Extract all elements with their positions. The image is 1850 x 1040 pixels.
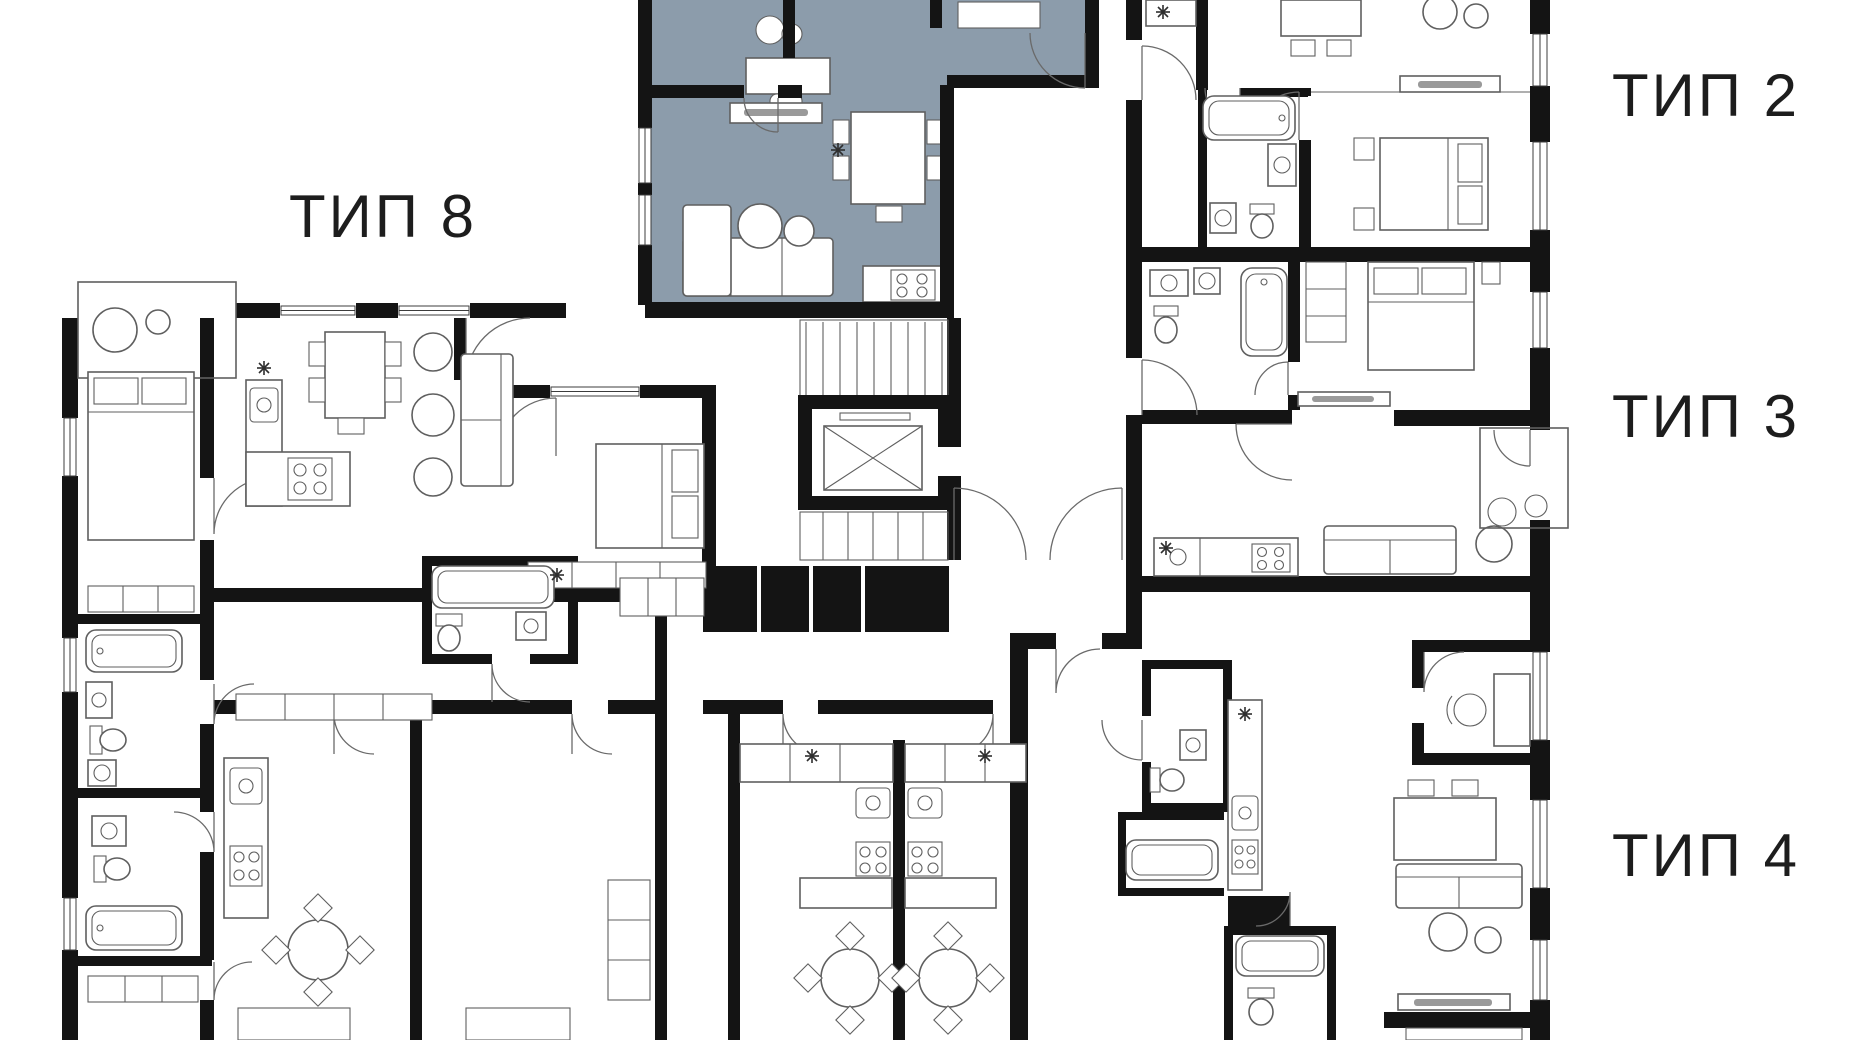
sink-icon <box>92 816 126 846</box>
bathtub-icon <box>1236 936 1324 976</box>
armchair-icon <box>414 333 452 371</box>
sofa-icon <box>1396 864 1522 908</box>
window-icon <box>64 898 76 950</box>
pouf-icon <box>738 204 782 248</box>
floor-plan: ТИП 8 ТИП 2 ТИП 3 ТИП 4 <box>0 0 1850 1040</box>
stairs-icon <box>800 320 948 397</box>
armchair-icon <box>412 394 454 436</box>
wardrobe-icon <box>88 586 194 612</box>
window-icon <box>1533 34 1547 86</box>
window-icon <box>1533 652 1547 740</box>
wardrobe-icon <box>1306 262 1346 342</box>
kitchen-icon <box>740 744 1026 908</box>
toilet-icon <box>94 856 130 882</box>
armchair-icon <box>414 458 452 496</box>
sofa-icon <box>1324 526 1456 574</box>
kitchen-icon <box>1146 0 1196 26</box>
toilet-icon <box>436 614 462 651</box>
label-tip-8: ТИП 8 <box>289 183 477 250</box>
sink-icon <box>1268 144 1296 186</box>
bed-icon <box>88 372 194 540</box>
sink-icon <box>1180 730 1206 760</box>
washing-machine-icon <box>88 760 116 786</box>
dining-table-icon <box>1281 0 1361 56</box>
window-icon <box>1533 800 1547 888</box>
side-table-icon <box>146 310 170 334</box>
vent-icon <box>831 143 845 157</box>
armchair-icon <box>1475 927 1501 953</box>
armchair-icon <box>1476 526 1512 562</box>
stairs-icon <box>703 512 949 632</box>
round-table-icon <box>794 922 906 1034</box>
chair-icon <box>1488 498 1516 526</box>
kitchen-icon <box>224 758 268 918</box>
round-table-icon <box>892 922 1004 1034</box>
sofa-icon <box>461 354 513 486</box>
vent-icon <box>1238 707 1252 721</box>
armchair-icon <box>1423 0 1457 29</box>
pouf-icon <box>784 216 814 246</box>
wardrobe-icon <box>608 880 650 1000</box>
sink-icon <box>86 682 112 718</box>
window-icon <box>551 387 639 396</box>
type-labels: ТИП 8 ТИП 2 ТИП 3 ТИП 4 <box>289 62 1800 889</box>
label-tip-3: ТИП 3 <box>1612 383 1800 450</box>
tv-stand-icon <box>1400 76 1500 92</box>
window-icon <box>639 195 651 245</box>
bed-icon <box>238 1008 350 1040</box>
closet-icon <box>958 2 1040 28</box>
chair-icon <box>1525 495 1547 517</box>
dining-table-icon <box>309 332 401 434</box>
window-icon <box>1533 940 1547 1000</box>
highlighted-apartment[interactable] <box>645 0 1097 302</box>
sink-icon <box>516 612 546 640</box>
bathtub-icon <box>86 906 182 950</box>
window-icon <box>639 128 651 183</box>
armchair-icon <box>1464 4 1488 28</box>
bed-icon <box>466 1008 570 1040</box>
toilet-icon <box>90 726 126 754</box>
balcony <box>1480 428 1568 528</box>
washing-machine-icon <box>1210 203 1236 233</box>
elevator-icon <box>798 395 952 510</box>
vent-icon <box>550 568 564 582</box>
sink-icon <box>1150 270 1188 296</box>
tv-stand-icon <box>730 103 822 123</box>
studios <box>224 566 1026 1040</box>
kitchen-icon <box>1154 538 1298 576</box>
bathtub-icon <box>1203 96 1295 140</box>
label-tip-2: ТИП 2 <box>1612 62 1800 129</box>
window-icon <box>64 418 76 476</box>
kitchen-icon <box>1228 700 1262 890</box>
washing-machine-icon <box>1194 268 1220 294</box>
armchair-icon <box>1429 913 1467 951</box>
bed-icon <box>1354 138 1488 230</box>
window-icon <box>64 638 76 692</box>
window-icon <box>1533 142 1547 230</box>
dining-table-icon <box>1394 780 1496 860</box>
window-icon <box>399 306 469 315</box>
stove-icon <box>863 266 947 302</box>
vent-icon <box>805 749 819 763</box>
bed-icon <box>1368 262 1500 370</box>
left-bathrooms <box>86 630 198 1002</box>
tip8-unit <box>78 282 706 612</box>
toilet-icon <box>1154 306 1178 343</box>
tv-stand-icon <box>1298 392 1390 406</box>
floor-plan-drawing: ТИП 8 ТИП 2 ТИП 3 ТИП 4 <box>0 0 1850 1040</box>
bed-icon <box>1406 1028 1522 1040</box>
vent-icon <box>978 749 992 763</box>
bathtub-icon <box>86 630 182 672</box>
toilet-icon <box>1250 204 1274 238</box>
vent-icon <box>1159 541 1173 555</box>
window-icon <box>1533 292 1547 348</box>
round-table-icon <box>262 894 374 1006</box>
toilet-icon <box>1248 988 1274 1025</box>
bathtub-icon <box>1126 840 1218 880</box>
tv-stand-icon <box>1398 994 1510 1010</box>
desk-icon <box>1447 674 1530 746</box>
toilet-icon <box>1150 768 1184 792</box>
bathtub-icon <box>1241 268 1287 356</box>
bathtub-icon <box>432 566 554 608</box>
label-tip-4: ТИП 4 <box>1612 822 1800 889</box>
vent-icon <box>1156 5 1170 19</box>
vent-icon <box>257 361 271 375</box>
shelf-icon <box>88 976 198 1002</box>
armchair-icon <box>93 308 137 352</box>
bed-icon <box>596 444 704 548</box>
window-icon <box>281 306 355 315</box>
